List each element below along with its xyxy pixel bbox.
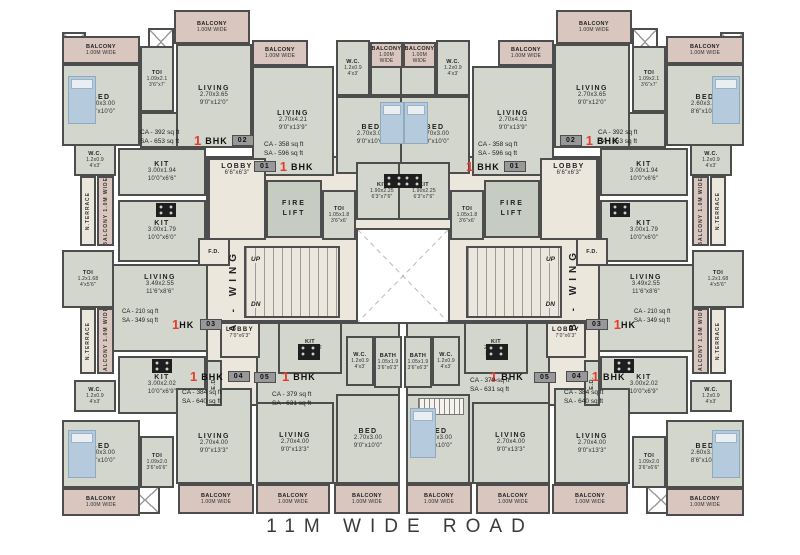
room-dim-ft: 11'6"x8'6" (146, 289, 174, 297)
unit-badge: 03 (586, 319, 608, 330)
room-dim-ft: 4'x5'6" (710, 282, 726, 289)
unit-count: 1 (586, 134, 593, 147)
fd-label: F.D. (208, 249, 219, 255)
room-name: KIT (636, 220, 651, 227)
ca-area: CA - 358 sq ft (478, 140, 542, 149)
lobby-dim: 7'0"x6'3" (230, 333, 251, 340)
unit-count: 1 (466, 160, 473, 173)
room-dim-m: 2.70x4.21 (499, 117, 527, 125)
room-toilet-unit02-left: TOI1.09x2.13'6"x7' (140, 46, 174, 112)
unit-badge: 04 (228, 371, 250, 382)
room-name: LIVING (576, 433, 608, 440)
balcony: BALCONY1.00M WIDE (252, 40, 308, 66)
room-dim-ft: 4'x3' (448, 71, 459, 78)
terrace-strip: N.TERRACE (710, 176, 726, 246)
room-dim-ft: 9'0"x10'0" (354, 443, 382, 451)
room-dim-m: 2.70x3.65 (578, 92, 606, 100)
terrace-strip: N.TERRACE (80, 176, 96, 246)
unit-count: 1 (280, 160, 287, 173)
room-bath-unit05-right: BATH1.05x1.93'6"x6'3" (404, 336, 432, 388)
unit-badge-unit05-right: 05 (534, 372, 556, 383)
ca-area: CA - 379 sq ft (470, 376, 532, 385)
unit-badge-unit05-left: 05 (254, 372, 276, 383)
room-dim-m: 2.70x4.00 (578, 440, 606, 448)
room-toilet-unit04-right: TOI1.09x2.03'6"x6'6" (632, 436, 666, 488)
room-wc-unit04-left: W.C.1.2x0.94'x3' (74, 380, 116, 412)
lobby-label: LOBBY (221, 163, 253, 170)
room-dim-ft: 10'0"x6'6" (148, 176, 176, 184)
room-dim-m: 2.70x4.00 (200, 440, 228, 448)
room-wc-unit05-left: W.C.1.2x0.94'x3' (346, 336, 374, 386)
ca-area: CA - 384 sq ft (564, 388, 626, 397)
room-dim-ft: 10'0"x6'9" (630, 389, 658, 397)
unit-type-unit01-left: 011BHK (254, 160, 314, 173)
sa-area: SA - 596 sq ft (264, 149, 328, 158)
unit-badge: 02 (560, 135, 582, 146)
room-kitchen-unit02-right: KIT3.00x1.9410'0"x6'6" (600, 148, 688, 196)
unit-count: 1 (190, 370, 197, 383)
room-dim-ft: 3'6"x7' (149, 82, 165, 89)
bed-icon (410, 408, 436, 458)
floor-plan-canvas: BALCONY1.00M WIDE BALCONY1.00M WIDE BALC… (0, 0, 800, 555)
balcony: BALCONY1.00M WIDE (370, 42, 403, 68)
unit-badge: 02 (232, 135, 254, 146)
room-dim-m: 3.00x1.94 (630, 168, 658, 176)
room-name: KIT (154, 220, 169, 227)
balcony: BALCONY1.00M WIDE (666, 36, 744, 64)
room-toilet-unit01-right: TOI1.05x1.83'6"x6' (450, 190, 484, 240)
room-name: LIVING (576, 85, 608, 92)
balcony: BALCONY1.00M WIDE (476, 484, 550, 514)
room-name: KIT (154, 374, 169, 381)
sa-area: SA - 631 sq ft (470, 385, 532, 394)
ca-area: CA - 384 sq ft (182, 388, 244, 397)
road-label: 11M WIDE ROAD (0, 516, 800, 538)
balcony: BALCONY1.00M WIDE (556, 10, 632, 44)
area-label-unit05-left: CA - 379 sq ftSA - 631 sq ft (272, 390, 334, 409)
lobby-b-wing: LOBBY6'6"x6'3" (540, 158, 598, 240)
balcony-width-label: 1.00M WIDE (352, 499, 382, 506)
room-dim-ft: 3'6"x6'6" (639, 465, 660, 472)
dn-label: DN (544, 301, 557, 308)
light-shaft (356, 228, 450, 324)
ca-area: CA - 210 sq ft (634, 308, 684, 317)
room-dim-m: 2.70x4.21 (279, 117, 307, 125)
staircase-a-wing: UPDN (244, 246, 340, 318)
room-name: BED (426, 124, 445, 131)
fire-lift: FIRE LIFT (266, 180, 322, 238)
balcony: BALCONY1.00M WIDE (406, 484, 472, 514)
balcony-width-label: 1.00M WIDE (690, 502, 720, 509)
room-dim-ft: 9'0"x12'0" (578, 100, 606, 108)
room-dim-m: 2.70x4.00 (497, 439, 525, 447)
room-wc-unit04-right: W.C.1.2x0.94'x3' (690, 380, 732, 412)
room-toilet-unit04-left: TOI1.09x2.03'6"x6'6" (140, 436, 174, 488)
room-dim-m: 3.49x2.55 (146, 281, 174, 289)
room-dim-ft: 4'x3' (90, 163, 101, 170)
a-wing-label: A - WING (228, 250, 239, 330)
area-label-unit03-right: CA - 210 sq ftSA - 349 sq ft (634, 308, 684, 325)
terrace-strip: N.TERRACE (710, 308, 726, 374)
room-dim-ft: 10'0"x6'0" (630, 235, 658, 243)
room-bed-unit05-left: BED2.70x3.009'0"x10'0" (336, 394, 400, 484)
balcony-width-label: 1.00M WIDE (579, 27, 609, 34)
room-toilet-unit02-right: TOI1.09x2.13'6"x7' (632, 46, 666, 112)
room-name: LIVING (277, 110, 309, 117)
balcony-width-label: 1.00M WIDE (197, 27, 227, 34)
room-dim-ft: 9'0"x12'0" (200, 100, 228, 108)
balcony-width-label: 1.00M WIDE (405, 52, 434, 65)
room-name: LIVING (495, 432, 527, 439)
balcony: BALCONY1.00M WIDE (403, 42, 436, 68)
unit-type-label: BHK (291, 162, 314, 172)
sa-area: SA - 640 sq ft (564, 397, 626, 406)
ca-area: CA - 358 sq ft (264, 140, 328, 149)
room-wc-unit02-left: W.C.1.2x0.94'x3' (74, 144, 116, 176)
unit-type-label: BHK (603, 372, 626, 382)
stove-icon (298, 344, 320, 360)
fire-lift-label: FIRE LIFT (495, 199, 529, 220)
room-dim-m: 2.70x3.65 (200, 92, 228, 100)
balcony: BALCONY1.00M WIDE (334, 484, 400, 514)
balcony: BALCONY1.00M WIDE (178, 484, 254, 514)
room-dim-m: 3.00x2.02 (148, 381, 176, 389)
room-kitchen-unit02-left: KIT3.00x1.9410'0"x6'6" (118, 148, 206, 196)
unit-type-unit03-right: 031HK (586, 318, 636, 331)
room-wc-unit01-left: W.C.1.2x0.94'x3' (336, 40, 370, 96)
fire-lift: FIRE LIFT (484, 180, 540, 238)
room-dim-ft: 4'x3' (706, 163, 717, 170)
terrace-label: N.TERRACE (715, 322, 721, 360)
room-dim-ft: 4'x3' (355, 364, 366, 371)
room-toilet-unit03-left: TOI1.2x1.684'x5'6" (62, 250, 114, 308)
balcony-width-label: 1.00M WIDE (575, 499, 605, 506)
unit-type-label: BHK (477, 162, 500, 172)
room-name: LIVING (144, 274, 176, 281)
room-dim-ft: 9'0"x13'9" (279, 125, 307, 133)
room-dim-ft: 3'6"x6'3" (408, 365, 429, 372)
room-kitchen-unit01-right: KIT1.90x2.256'3"x7'6" (398, 162, 450, 220)
lobby-dim: 7'0"x6'3" (556, 333, 577, 340)
terrace-label: N.TERRACE (85, 192, 91, 230)
room-dim-ft: 3'6"x6'3" (378, 365, 399, 372)
balcony-strip: BALCONY 1.0M WIDE (692, 176, 709, 246)
unit-type-unit01-right: 1BHK01 (466, 160, 526, 173)
balcony-width-label: 1.00M WIDE (424, 499, 454, 506)
room-toilet-unit01-left: TOI1.05x1.83'6"x6' (322, 190, 356, 240)
room-dim-ft: 6'3"x7'6" (414, 194, 435, 201)
fd-label: F.D. (586, 249, 597, 255)
room-dim-ft: 4'x3' (441, 364, 452, 371)
room-dim-ft: 11'6"x8'6" (632, 289, 660, 297)
balcony-width-label: 1.00M WIDE (201, 499, 231, 506)
balcony-strip-label: BALCONY 1.0M WIDE (103, 308, 109, 374)
area-label-unit04-left: CA - 384 sq ftSA - 640 sq ft (182, 388, 244, 407)
stove-icon (610, 203, 630, 217)
room-dim-m: 2.70x4.00 (281, 439, 309, 447)
unit-type-label: BHK (597, 136, 620, 146)
balcony: BALCONY1.00M WIDE (62, 488, 140, 516)
unit-badge: 05 (534, 372, 556, 383)
room-wc-unit02-right: W.C.1.2x0.94'x3' (690, 144, 732, 176)
unit-type-unit02-right: 021BHK (560, 134, 620, 147)
ca-area: CA - 210 sq ft (122, 308, 172, 317)
room-dim-ft: 9'0"x13'3" (200, 448, 228, 456)
wing-label-b: B - WING (564, 250, 582, 330)
unit-count: 1 (614, 318, 621, 331)
room-dim-ft: 4'x5'6" (80, 282, 96, 289)
unit-type-label: BHK (201, 372, 224, 382)
room-dim-m: 3.00x1.79 (630, 227, 658, 235)
sa-area: SA - 631 sq ft (272, 399, 334, 408)
stove-icon (486, 344, 508, 360)
room-living-unit05-left: LIVING2.70x4.009'0"x13'3" (256, 402, 334, 484)
terrace-label: N.TERRACE (85, 322, 91, 360)
room-dim-ft: 10'0"x6'6" (630, 176, 658, 184)
room-living-unit05-right: LIVING2.70x4.009'0"x13'3" (472, 402, 550, 484)
area-label-unit01-left: CA - 358 sq ftSA - 596 sq ft (264, 140, 328, 159)
room-name: KIT (154, 161, 169, 168)
staircase-b-wing: UPDN (466, 246, 562, 318)
room-name: KIT (636, 161, 651, 168)
unit-badge: 01 (504, 161, 526, 172)
bed-icon (712, 430, 740, 478)
area-label-unit04-right: CA - 384 sq ftSA - 640 sq ft (564, 388, 626, 407)
unit-badge: 05 (254, 372, 276, 383)
sa-area: SA - 349 sq ft (634, 317, 684, 326)
room-name: KIT (636, 374, 651, 381)
stove-icon (152, 359, 172, 373)
bed-icon (404, 102, 428, 144)
stove-icon (384, 174, 404, 188)
balcony: BALCONY1.00M WIDE (174, 10, 250, 44)
fire-lift-label: FIRE LIFT (277, 199, 311, 220)
room-name: LIVING (497, 110, 529, 117)
balcony: BALCONY1.00M WIDE (498, 40, 554, 66)
room-dim-ft: 4'x3' (348, 71, 359, 78)
room-dim-ft: 3'6"x6' (331, 218, 347, 225)
bed-icon (68, 76, 96, 124)
unit-type-label: HK (179, 320, 194, 330)
balcony-width-label: 1.00M WIDE (511, 53, 541, 60)
area-label-unit03-left: CA - 210 sq ftSA - 349 sq ft (122, 308, 172, 325)
unit-type-label: BHK (293, 372, 316, 382)
balcony-strip: BALCONY 1.0M WIDE (692, 308, 709, 374)
unit-type-label: HK (621, 320, 636, 330)
sa-area: SA - 349 sq ft (122, 317, 172, 326)
bed-icon (68, 430, 96, 478)
area-label-unit01-right: CA - 358 sq ftSA - 596 sq ft (478, 140, 542, 159)
balcony-width-label: 1.00M WIDE (86, 502, 116, 509)
unit-count: 1 (592, 370, 599, 383)
room-dim-ft: 4'x3' (706, 399, 717, 406)
ca-area: CA - 379 sq ft (272, 390, 334, 399)
terrace-strip: N.TERRACE (80, 308, 96, 374)
room-wc-unit05-right: W.C.1.2x0.94'x3' (432, 336, 460, 386)
room-dim-ft: 3'6"x6' (459, 218, 475, 225)
room-dim-m: 3.49x2.55 (632, 281, 660, 289)
room-dim-ft: 10'0"x6'0" (148, 235, 176, 243)
balcony-width-label: 1.00M WIDE (278, 499, 308, 506)
balcony-strip: BALCONY 1.0M WIDE (97, 176, 114, 246)
room-dim-ft: 3'6"x7' (641, 82, 657, 89)
wing-label-a: A - WING (224, 250, 242, 330)
balcony-strip-label: BALCONY 1.0M WIDE (103, 177, 109, 246)
room-dim-m: 3.00x2.02 (630, 381, 658, 389)
room-dim-m: 2.70x3.00 (354, 435, 382, 443)
unit-type-unit05-left: 1BHK (282, 370, 316, 383)
area-label-unit05-right: CA - 379 sq ftSA - 631 sq ft (470, 376, 532, 395)
balcony-width-label: 1.00M WIDE (498, 499, 528, 506)
room-bath-unit05-left: BATH1.05x1.93'6"x6'3" (374, 336, 402, 388)
b-wing-label: B - WING (568, 250, 579, 330)
unit-type-unit02-left: 1BHK02 (194, 134, 254, 147)
balcony-width-label: 1.00M WIDE (690, 50, 720, 57)
stove-icon (402, 174, 422, 188)
balcony-width-label: 1.00M WIDE (265, 53, 295, 60)
room-dim-ft: 9'0"x13'9" (499, 125, 527, 133)
balcony-width-label: 1.00M WIDE (372, 52, 401, 65)
room-name: LIVING (198, 85, 230, 92)
room-dim-m: 3.00x1.79 (148, 227, 176, 235)
unit-type-unit03-left: 1HK03 (172, 318, 222, 331)
room-name: BED (362, 124, 381, 131)
balcony: BALCONY1.00M WIDE (256, 484, 330, 514)
balcony: BALCONY1.00M WIDE (666, 488, 744, 516)
lobby-dim: 6'6"x6'3" (557, 170, 582, 178)
unit-type-unit04-right: 041BHK (566, 370, 626, 383)
up-label: UP (544, 256, 557, 263)
unit-type-label: BHK (205, 136, 228, 146)
unit-badge: 03 (200, 319, 222, 330)
lobby-dim: 6'6"x6'3" (225, 170, 250, 178)
room-wc-unit01-right: W.C.1.2x0.94'x3' (436, 40, 470, 96)
room-dim-ft: 9'0"x13'3" (281, 447, 309, 455)
room-toilet-unit03-right: TOI1.2x1.684'x5'6" (692, 250, 744, 308)
room-name: LIVING (279, 432, 311, 439)
sa-area: SA - 640 sq ft (182, 397, 244, 406)
bed-icon (380, 102, 404, 144)
unit-count: 1 (172, 318, 179, 331)
room-name: LIVING (630, 274, 662, 281)
lobby-label: LOBBY (553, 163, 585, 170)
room-dim-ft: 3'6"x6'6" (147, 465, 168, 472)
room-dim-ft: 9'0"x13'3" (578, 448, 606, 456)
balcony-strip-label: BALCONY 1.0M WIDE (698, 177, 704, 246)
room-name: LIVING (198, 433, 230, 440)
room-dim-ft: 10'0"x6'9" (148, 389, 176, 397)
dn-label: DN (249, 301, 262, 308)
unit-type-unit04-left: 1BHK04 (190, 370, 250, 383)
balcony: BALCONY1.00M WIDE (62, 36, 140, 64)
unit-badge: 01 (254, 161, 276, 172)
unit-count: 1 (194, 134, 201, 147)
room-name: BED (359, 428, 378, 435)
unit-badge: 04 (566, 371, 588, 382)
balcony: BALCONY1.00M WIDE (552, 484, 628, 514)
unit-count: 1 (282, 370, 289, 383)
room-dim-m: 3.00x1.94 (148, 168, 176, 176)
room-dim-ft: 6'3"x7'6" (372, 194, 393, 201)
bed-icon (712, 76, 740, 124)
stove-icon (156, 203, 176, 217)
up-label: UP (249, 256, 262, 263)
balcony-width-label: 1.00M WIDE (86, 50, 116, 57)
sa-area: SA - 596 sq ft (478, 149, 542, 158)
room-dim-ft: 4'x3' (90, 399, 101, 406)
passage-unit01-right (400, 66, 436, 96)
shaft-cross-icon (358, 230, 448, 322)
terrace-label: N.TERRACE (715, 192, 721, 230)
balcony-strip-label: BALCONY 1.0M WIDE (698, 308, 704, 374)
room-dim-ft: 9'0"x13'3" (497, 447, 525, 455)
